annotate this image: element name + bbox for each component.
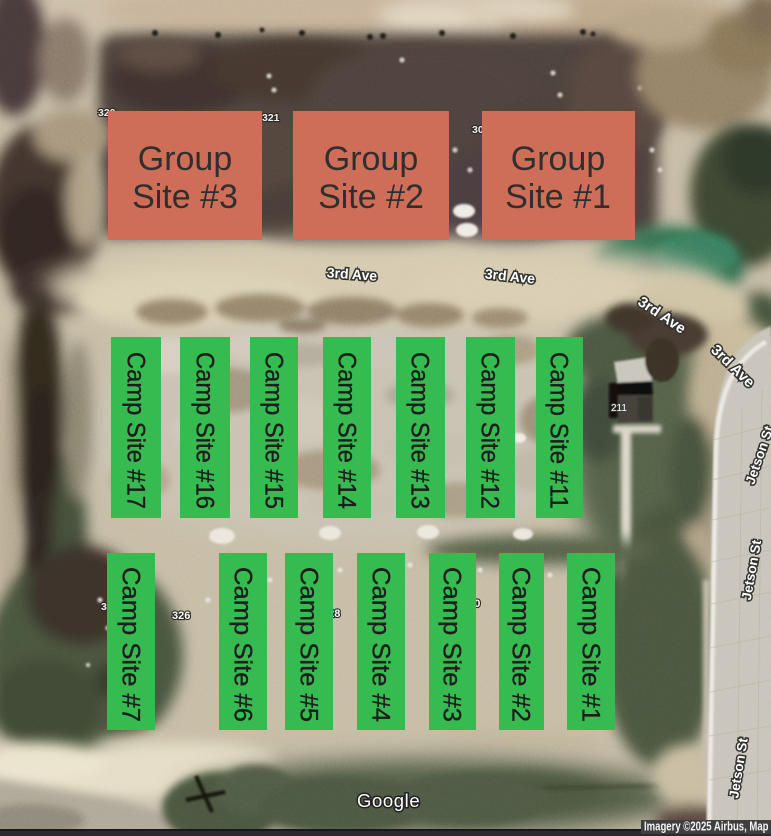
svg-text:Camp Site #1: Camp Site #1 — [576, 567, 604, 722]
svg-text:Camp Site #5: Camp Site #5 — [294, 567, 322, 722]
svg-text:Camp Site #13: Camp Site #13 — [405, 352, 433, 509]
svg-text:Site #3: Site #3 — [132, 178, 238, 216]
svg-text:Camp Site #3: Camp Site #3 — [437, 567, 465, 722]
svg-text:Site #2: Site #2 — [318, 178, 424, 216]
svg-text:Group: Group — [138, 140, 233, 178]
svg-text:Group: Group — [324, 140, 419, 178]
svg-text:326: 326 — [172, 610, 190, 622]
svg-text:Camp Site #11: Camp Site #11 — [544, 352, 572, 509]
svg-text:Camp Site #12: Camp Site #12 — [475, 352, 503, 509]
svg-text:Camp Site #16: Camp Site #16 — [190, 352, 218, 509]
svg-text:Camp Site #17: Camp Site #17 — [121, 352, 149, 509]
svg-text:Camp Site #2: Camp Site #2 — [506, 567, 534, 722]
svg-text:Camp Site #7: Camp Site #7 — [116, 567, 144, 722]
svg-text:Imagery ©2025 Airbus, Map d: Imagery ©2025 Airbus, Map d — [644, 820, 771, 834]
svg-text:Camp Site #15: Camp Site #15 — [259, 352, 287, 509]
svg-text:321: 321 — [262, 112, 280, 124]
svg-text:Camp Site #6: Camp Site #6 — [228, 567, 256, 722]
svg-text:Group: Group — [511, 140, 606, 178]
svg-text:Camp Site #14: Camp Site #14 — [332, 352, 360, 509]
svg-text:Camp Site #4: Camp Site #4 — [366, 567, 394, 722]
svg-text:Google: Google — [357, 790, 420, 811]
svg-text:Site #1: Site #1 — [505, 178, 611, 216]
